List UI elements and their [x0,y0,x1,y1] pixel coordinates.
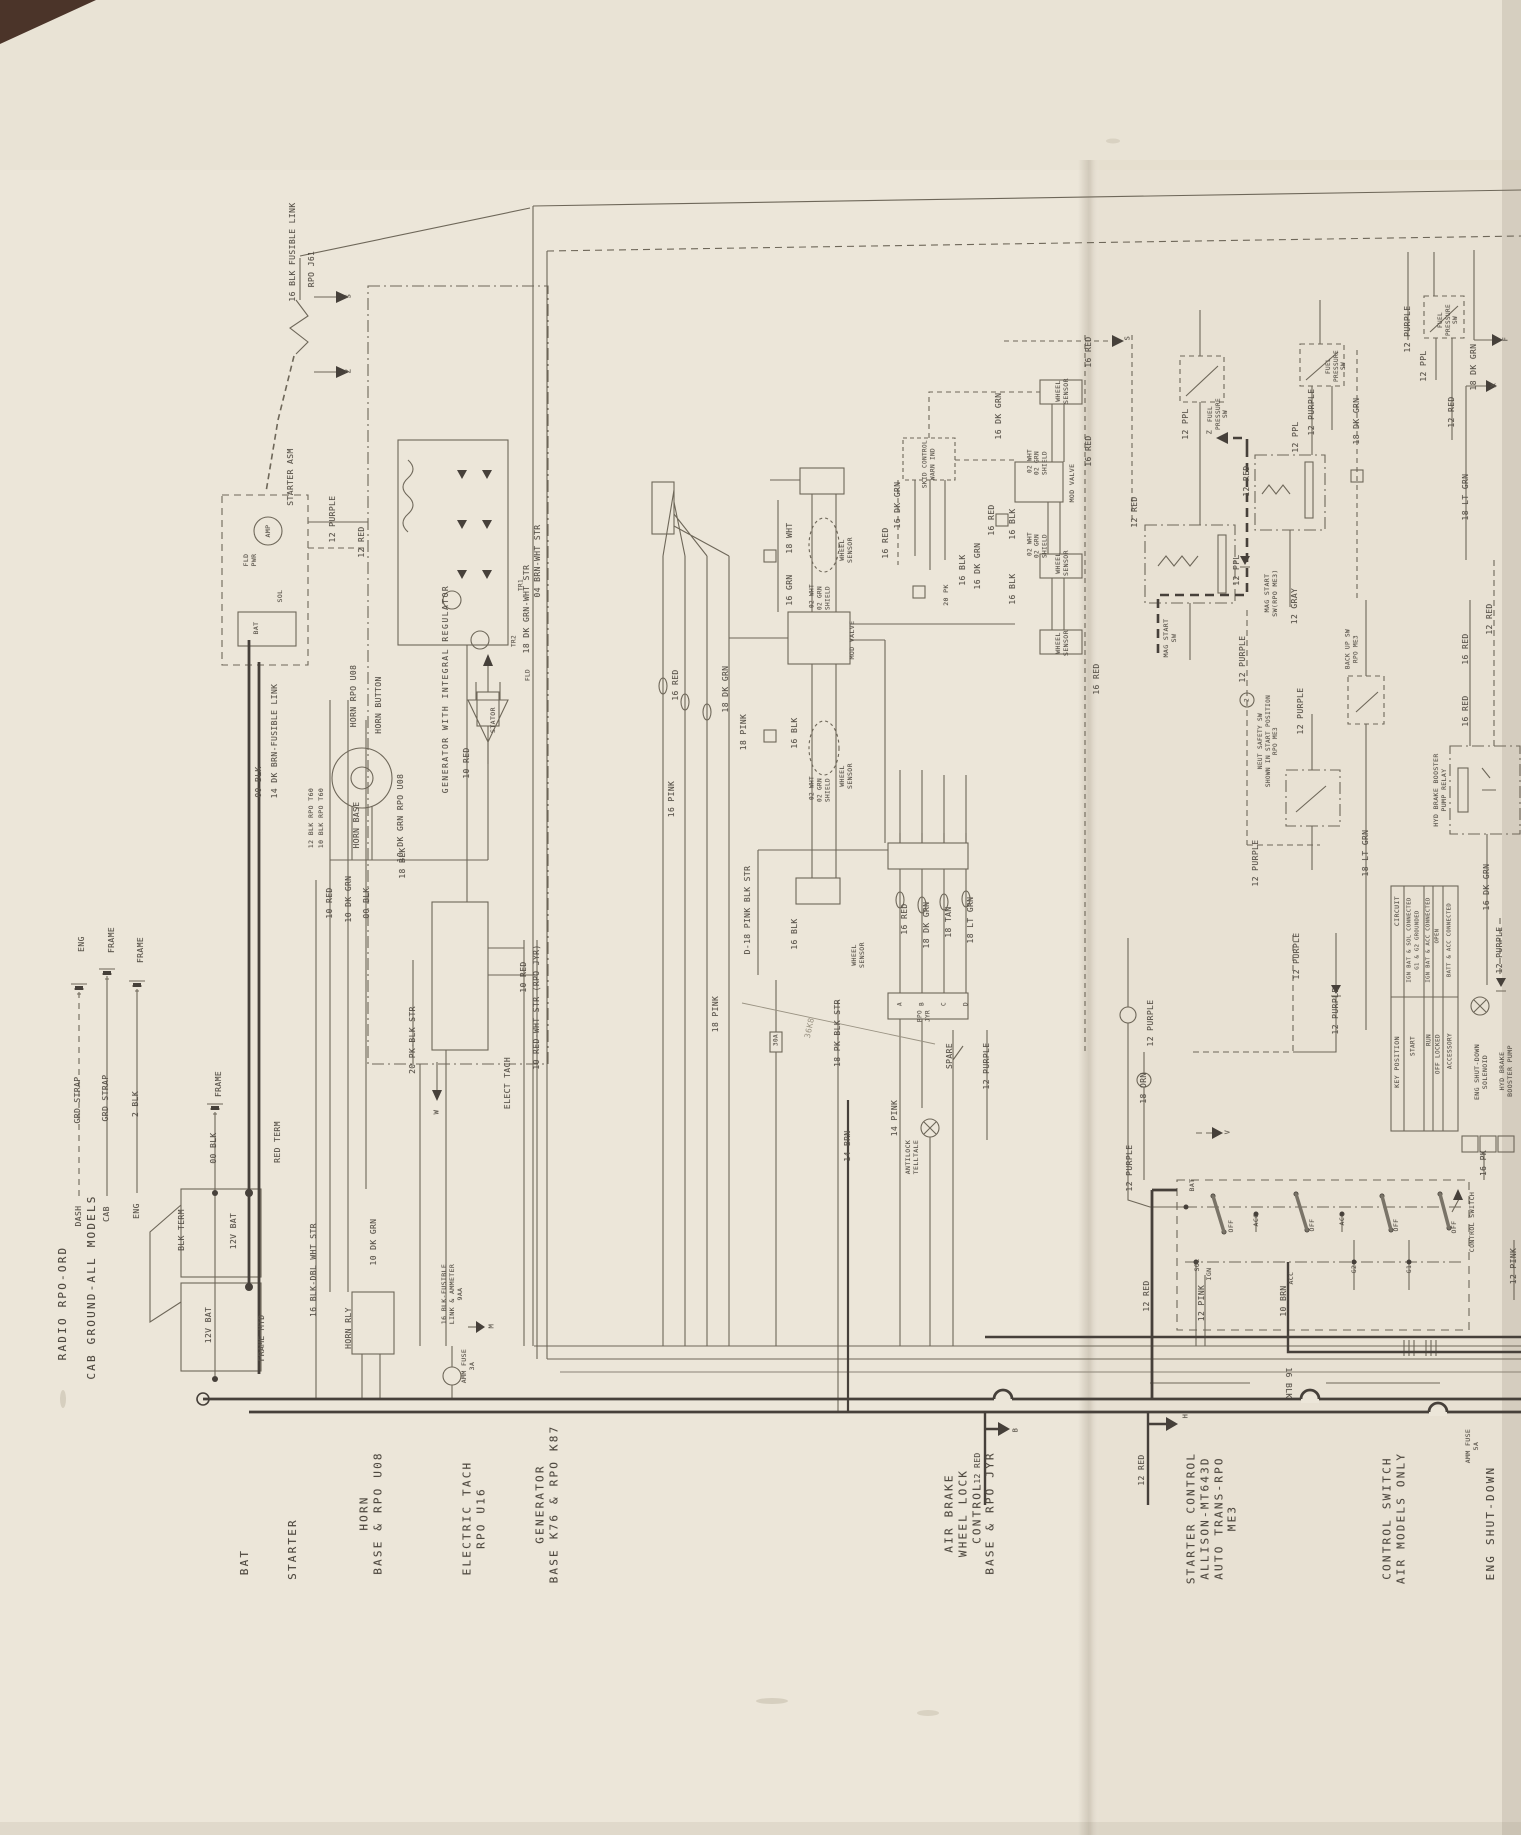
wire-label: 16 BLK [1283,1367,1293,1398]
wire-label: 16 DK GRN [973,543,983,590]
wire-label: 16 RED [987,504,997,535]
arrow-letter: S [1124,336,1133,341]
section-label: STARTER CONTROL ALLISON-MT643D AUTO TRAN… [1185,1452,1240,1584]
wire-label: 12 PURPLE [1296,688,1306,735]
legend-label: 2 BLK [131,1091,141,1117]
terminal-label: SOL [1193,1259,1201,1272]
component-label: CONTROL SWITCH [1468,1192,1476,1252]
wire-label: 12 BLK RPO T60 [307,788,315,848]
wire-label: 16 BLK [790,717,800,748]
wire-label: 16 RED [1461,633,1471,664]
section-label: HORN BASE & RPO U08 [357,1451,385,1575]
legend-label: CAB [102,1206,112,1222]
wire-label: 18 DK GRN [721,666,731,713]
wire-label: HORN BUTTON [374,676,384,733]
section-label: CAB GROUND-ALL MODELS [85,1194,99,1379]
legend-label: 00 BLK [209,1132,219,1163]
wire-label: FRAME MTD [257,1315,267,1362]
wire-label: 16 BLK [790,918,800,949]
wire-label: 18 DK GRN [922,902,932,949]
wire-label: 10 DK GRN [369,1219,379,1266]
terminal-label: BAT [1188,1179,1196,1192]
component-label: ELECT TACH [503,1057,513,1109]
terminal-label: ACC [1252,1214,1260,1227]
terminal-label: OFF [1392,1219,1400,1232]
component-label: FUEL PRESSURE SW [1325,350,1348,382]
key-table-cell: G1 & G2 GROUNDED [1415,910,1422,969]
wire-label: 12 PPL [1419,350,1429,381]
arrow-letter: W [433,1110,442,1115]
component-label: MOD VALVE [848,621,856,660]
wire-label: 04 BRN-WHT STR [533,524,543,597]
wire-label: 02 WHT [808,584,816,608]
terminal-label: IGN [1205,1268,1213,1281]
terminal-label: OFF [1227,1220,1235,1233]
component-label: SKID CONTROL WARN IND [922,440,937,488]
key-table-cell: OFF LOCKED [1434,1034,1442,1074]
wire-label: 14 PINK [890,1100,900,1137]
wire-label: 16 GRN [785,574,795,605]
wire-label: 16 BLK [1008,573,1018,604]
key-table-cell: IGN BAT & SOL CONNECTED [1407,897,1414,982]
wire-label: RED TERM [273,1121,283,1163]
pin-label: B [918,1002,926,1006]
wire-label: 16 BLK-FUSIBLE LINK & AMMETER 9AA [440,1264,464,1324]
legend-label: ENG [77,936,87,952]
wire-label: 16 BLK [958,554,968,585]
wire-label: 12 PURPLE [1238,636,1248,683]
key-table-header: CIRCUIT [1393,896,1401,926]
component-label: HORN RLY [344,1307,354,1349]
wire-label: 16 RED [900,903,910,934]
legend-label: ENG [132,1203,142,1219]
wire-label: 10 BRN [1279,1285,1289,1316]
wire-label: 18 LT GRN [1361,830,1371,877]
key-table-cell: ACCESSORY [1446,1033,1454,1069]
section-label: GENERATOR BASE K76 & RPO K87 [533,1425,561,1584]
wire-label: HORN RPO U08 [349,665,359,728]
component-label: FUEL PRESSURE SW [1437,304,1460,336]
scanned-page: RADIO RPO-ORDCAB GROUND-ALL MODELSBATSTA… [0,0,1521,1835]
wire-label: 12 PURPLE [1251,840,1261,887]
arrow-letter: Z [345,369,354,374]
arrow-letter: Z [1206,430,1215,435]
terminal-label: ACC [1287,1272,1295,1285]
wire-label: 12 PURPLE [1292,933,1302,980]
arrow-letter: V [1224,1130,1233,1135]
wire-label: 12 RED [1137,1454,1147,1485]
component-label: 30A [772,1034,780,1046]
component-label: WHEEL SENSOR [1054,550,1070,576]
terminal-label: G2 [1350,1265,1358,1274]
wire-label: 18 DK GRN [1352,398,1362,445]
arrow-letter: B [1012,1428,1021,1433]
wire-label: 16 RED [1092,663,1102,694]
wire-label: 12 PINK [1197,1285,1207,1322]
component-label: FLD [524,669,532,681]
component-label: WHEEL SENSOR [1054,630,1070,656]
component-label: WHEEL SENSOR [1054,378,1070,404]
wire-label: 10 RED [325,887,335,918]
wire-label: 18 LT GRN [966,897,976,944]
section-label: RADIO RPO-ORD [56,1246,70,1361]
wire-label: 12 RED [1242,465,1252,496]
wire-label: FLD PWR [242,554,258,567]
wire-label: 12 RED [1142,1280,1152,1311]
wire-label: 18 PINK [711,996,721,1033]
wire-label: SOL [276,590,284,603]
legend-label: DASH [74,1206,84,1227]
wire-label: 14 BRN [843,1130,853,1161]
component-label: WHEEL SENSOR [838,537,854,563]
wire-label: 16 RED [1084,336,1094,367]
wire-label: 18 ORN [1139,1072,1149,1103]
wire-label: SPARE [945,1043,955,1069]
wire-label: 12 RED [1485,603,1495,634]
arrow-letter: M [488,1324,497,1329]
wire-label: 20 PK [942,584,950,606]
component-label: WHEEL SENSOR [838,763,854,789]
wire-label: 12V BAT [204,1307,214,1344]
wire-label: RPO JYR [917,1010,932,1022]
pin-label: D [962,1002,970,1006]
component-label: GENERATOR WITH INTEGRAL REGULATOR [441,585,451,793]
wire-label: 12 RED [973,1452,983,1483]
wire-label: 00 BLK [254,766,264,797]
wire-label: 16 DK GRN [1482,864,1492,911]
key-table-cell: OPEN [1435,929,1442,944]
arrow-letter: X [1490,383,1499,388]
wire-label: 16 BLK [1008,508,1018,539]
key-table-cell: IGN BAT & ACC CONNECTED [1426,897,1433,982]
key-table-header: KEY POSITION [1393,1036,1401,1088]
wire-label: 18 WHT [785,522,795,553]
component-label: ANTILOCK TELLTALE [904,1140,920,1175]
wire-label: 12 PURPLE [1146,1000,1156,1047]
wire-label: 16 PINK [667,781,677,818]
wire-label: 18 PINK [739,714,749,751]
component-label: MAG START SW(RPO ME3) [1263,569,1279,616]
wire-label: AMM FUSE 3A [460,1349,476,1384]
wire-label: 12 RED [357,526,367,557]
component-label: TR2 [510,635,518,647]
wire-label: 12 PURPLE [1495,927,1505,974]
wire-label: 16 DK GRN [893,482,903,529]
component-label: MAG START SW [1162,619,1178,658]
wire-label: 12 GRAY [1290,588,1300,625]
wire-label: 12 PPL [1232,554,1242,585]
wire-label: 12 PURPLE [982,1043,992,1090]
wire-label: 02 WHT [808,776,816,800]
wire-label: 10 RED-WHT STR (RPO JYR) [532,944,542,1069]
wire-label: 02 GRN SHIELD [1034,534,1049,558]
component-label: BACK UP SW RPO ME3 [1345,629,1360,669]
section-label: ELECTRIC TACH RPO U16 [460,1461,488,1576]
wire-label: 02 GRN SHIELD [1034,451,1049,475]
wire-label: 18 DK GRN-WHT STR [522,565,532,654]
wire-label: 12 PURPLE [1307,389,1317,436]
wire-label: HORN BASE [352,802,362,849]
wire-label: 12 RED [1130,496,1140,527]
terminal-label: OFF [1450,1221,1458,1234]
section-label: ENG SHUT-DOWN [1484,1466,1498,1581]
wire-label: 12 PPL [1291,421,1301,452]
wire-label: 10 RED [519,961,529,992]
legend-label: FRAME [214,1071,224,1097]
wiring-diagram-lines [0,0,1521,1835]
component-label: AMP [264,525,272,538]
wire-label: 00 BLK [362,887,372,918]
terminal-label: OFF [1308,1219,1316,1232]
wire-label: 12 RED [1447,396,1457,427]
section-label: AIR BRAKE WHEEL LOCK CONTROL BASE & RPO … [943,1451,998,1575]
legend-label: FRAME [107,927,117,953]
wire-label: 16 RED [671,669,681,700]
component-label: NEUT SAFETY SW SHOWN IN START POSITION R… [1257,695,1280,787]
wire-label: 02 GRN SHIELD [817,586,832,610]
wire-label: 10 DK GRN [344,876,354,923]
wire-label: RPO J61 [307,251,317,288]
legend-label: GRD STRAP [73,1077,83,1124]
wire-label: 16 RED [1084,435,1094,466]
wire-label: 18 DK GRN [1469,344,1479,391]
wire-label: 16 RED [1461,695,1471,726]
component-label: MOD VALVE [1068,464,1076,503]
terminal-label: 2 [1243,698,1251,702]
pin-label: A [896,1002,904,1006]
wire-label: 12 PURPLE [1125,1145,1135,1192]
arrow-letter: F [1502,337,1511,342]
wire-label: 12 PPL [1181,408,1191,439]
wire-label: D-18 PINK BLK STR [743,866,753,955]
wire-label: 16 BLK-DBL WHT STR [309,1223,319,1317]
wire-label: STARTER ASM [286,448,296,505]
section-label: CONTROL SWITCH AIR MODELS ONLY [1380,1452,1408,1584]
wire-label: 10 RED [462,747,472,778]
component-label: HYD BRAKE BOOSTER PUMP [1498,1045,1514,1097]
legend-label: FRAME [136,937,146,963]
component-label: HYD BRAKE BOOSTER PUMP RELAY [1432,753,1448,826]
wire-label: 18 BLK [398,847,408,878]
section-label: STARTER [286,1518,300,1580]
wire-label: 16 RED [881,527,891,558]
wire-label: 12 PURPLE [328,496,338,543]
section-label: BAT [238,1549,252,1575]
wire-label: 20 PK-BLK STR [408,1006,418,1074]
wire-label: BAT [252,622,260,635]
wire-label: 16 PK [1479,1150,1489,1176]
key-table-cell: START [1409,1036,1417,1056]
arrow-letter: H [1182,1414,1191,1419]
wire-label: 12V BAT [229,1213,239,1250]
wire-label: 18 TAN [944,906,954,937]
wire-label: 12 PURPLE [1403,306,1413,353]
key-table-cell: RUN [1425,1034,1433,1046]
component-label: STATOR [489,707,497,733]
legend-label: GRD STRAP [101,1075,111,1122]
terminal-label: G1 [1405,1265,1413,1274]
pin-label: C [940,1002,948,1006]
wire-label: 02 GRN SHIELD [817,778,832,802]
arrow-letter: S [345,294,354,299]
wire-label: 12 PINK [1509,1248,1519,1285]
terminal-label: ACC [1338,1213,1346,1226]
component-label: ENG SHUT-DOWN SOLENOID [1473,1044,1489,1100]
wire-label: AMM FUSE 5A [1464,1429,1480,1464]
component-label: FUEL PRESSURE SW [1207,398,1230,430]
wire-label: 18 PK-BLK STR [833,999,843,1067]
wire-label: 16 BLK FUSIBLE LINK [288,202,298,301]
wire-label: BLK TERM [177,1209,187,1251]
key-table-cell: BATT & ACC CONNECTED [1447,903,1454,977]
wire-label: 16 DK GRN [994,393,1004,440]
wire-label: 12 PURPLE [1331,988,1341,1035]
wire-label: 10 BLK RPO T60 [317,788,325,848]
component-label: WHEEL SENSOR [850,942,866,968]
wire-label: 14 DK BRN-FUSIBLE LINK [270,684,280,799]
wire-label: 18 LT GRN [1461,474,1471,521]
